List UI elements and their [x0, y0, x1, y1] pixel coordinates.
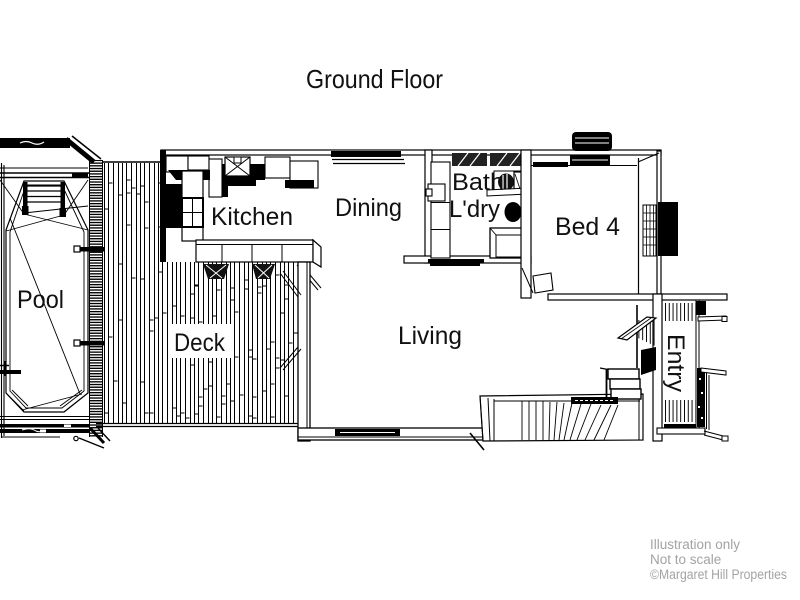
- svg-text:Dining: Dining: [335, 194, 402, 222]
- svg-text:Living: Living: [398, 322, 462, 350]
- svg-text:L'dry: L'dry: [449, 196, 500, 223]
- svg-text:Kitchen: Kitchen: [211, 203, 293, 231]
- svg-text:Entry: Entry: [662, 334, 689, 392]
- svg-text:Bed 4: Bed 4: [555, 213, 620, 241]
- svg-text:©Margaret Hill Properties: ©Margaret Hill Properties: [650, 567, 787, 582]
- svg-text:Bath: Bath: [452, 169, 504, 196]
- svg-text:Pool: Pool: [17, 286, 64, 314]
- svg-text:Not to scale: Not to scale: [650, 552, 721, 567]
- svg-text:Deck: Deck: [174, 329, 225, 357]
- svg-text:Ground Floor: Ground Floor: [306, 64, 443, 94]
- svg-text:Illustration only: Illustration only: [650, 537, 740, 552]
